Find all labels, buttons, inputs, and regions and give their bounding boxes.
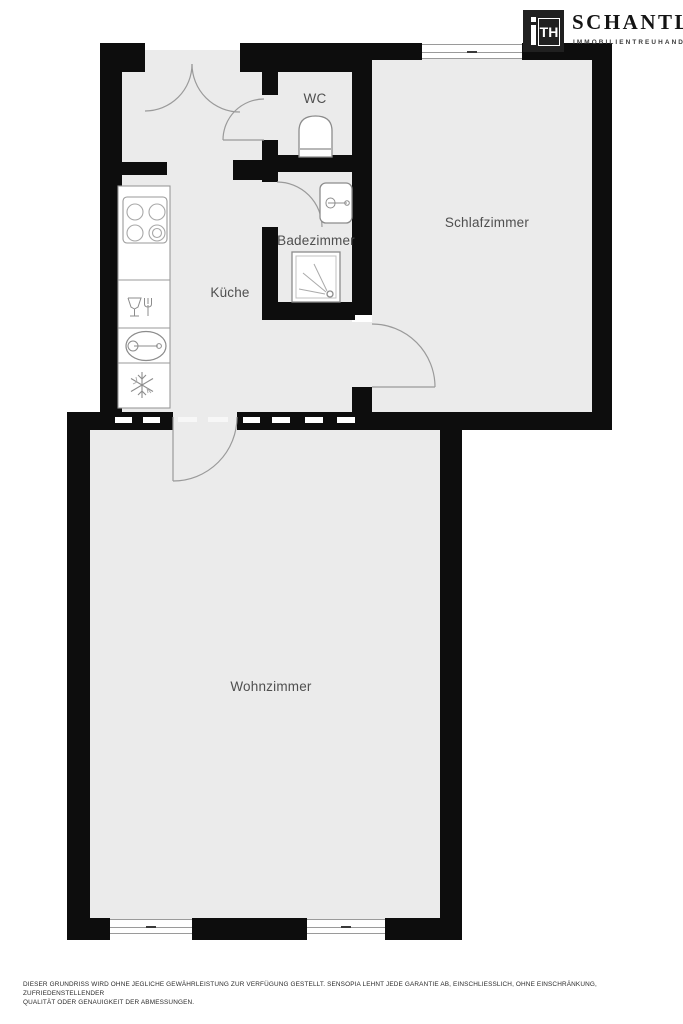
room-label-schlafzimmer: Schlafzimmer xyxy=(377,215,597,230)
kitchen-counter xyxy=(118,186,170,408)
wc-door-swing-icon xyxy=(223,99,264,140)
ith-monogram-icon: TH xyxy=(523,10,564,52)
schlafzimmer-door-swing-icon xyxy=(372,324,435,387)
badezimmer-door-swing-icon xyxy=(277,182,322,227)
shower-icon xyxy=(292,252,340,302)
entrance-door-swing-icon xyxy=(145,64,240,112)
monogram-dot xyxy=(531,17,536,22)
company-tagline: IMMOBILIENTREUHAND xyxy=(573,39,683,46)
room-label-kueche: Küche xyxy=(167,285,293,300)
washbasin-icon xyxy=(320,183,352,223)
company-logo: TH SCHANTL IMMOBILIENTREUHAND xyxy=(520,8,683,56)
disclaimer-text: DIESER GRUNDRISS WIRD OHNE JEGLICHE GEWÄ… xyxy=(23,980,668,1007)
wohnzimmer-door-swing-icon xyxy=(173,417,237,481)
room-label-wc: WC xyxy=(278,91,352,106)
floor-plan-page: WC Schlafzimmer Badezimmer Küche Wohnzim… xyxy=(0,0,683,1024)
disclaimer-line-2: QUALITÄT ODER GENAUIGKEIT DER ABMESSUNGE… xyxy=(23,998,668,1007)
monogram-i-bar xyxy=(531,25,536,45)
fixtures-layer xyxy=(0,0,683,1024)
room-label-wohnzimmer: Wohnzimmer xyxy=(96,679,446,694)
monogram-th: TH xyxy=(538,18,560,46)
toilet-icon xyxy=(299,116,332,157)
disclaimer-line-1: DIESER GRUNDRISS WIRD OHNE JEGLICHE GEWÄ… xyxy=(23,980,668,998)
sink-icon xyxy=(126,332,166,361)
room-label-badezimmer: Badezimmer xyxy=(262,233,370,248)
company-name: SCHANTL xyxy=(572,10,683,35)
